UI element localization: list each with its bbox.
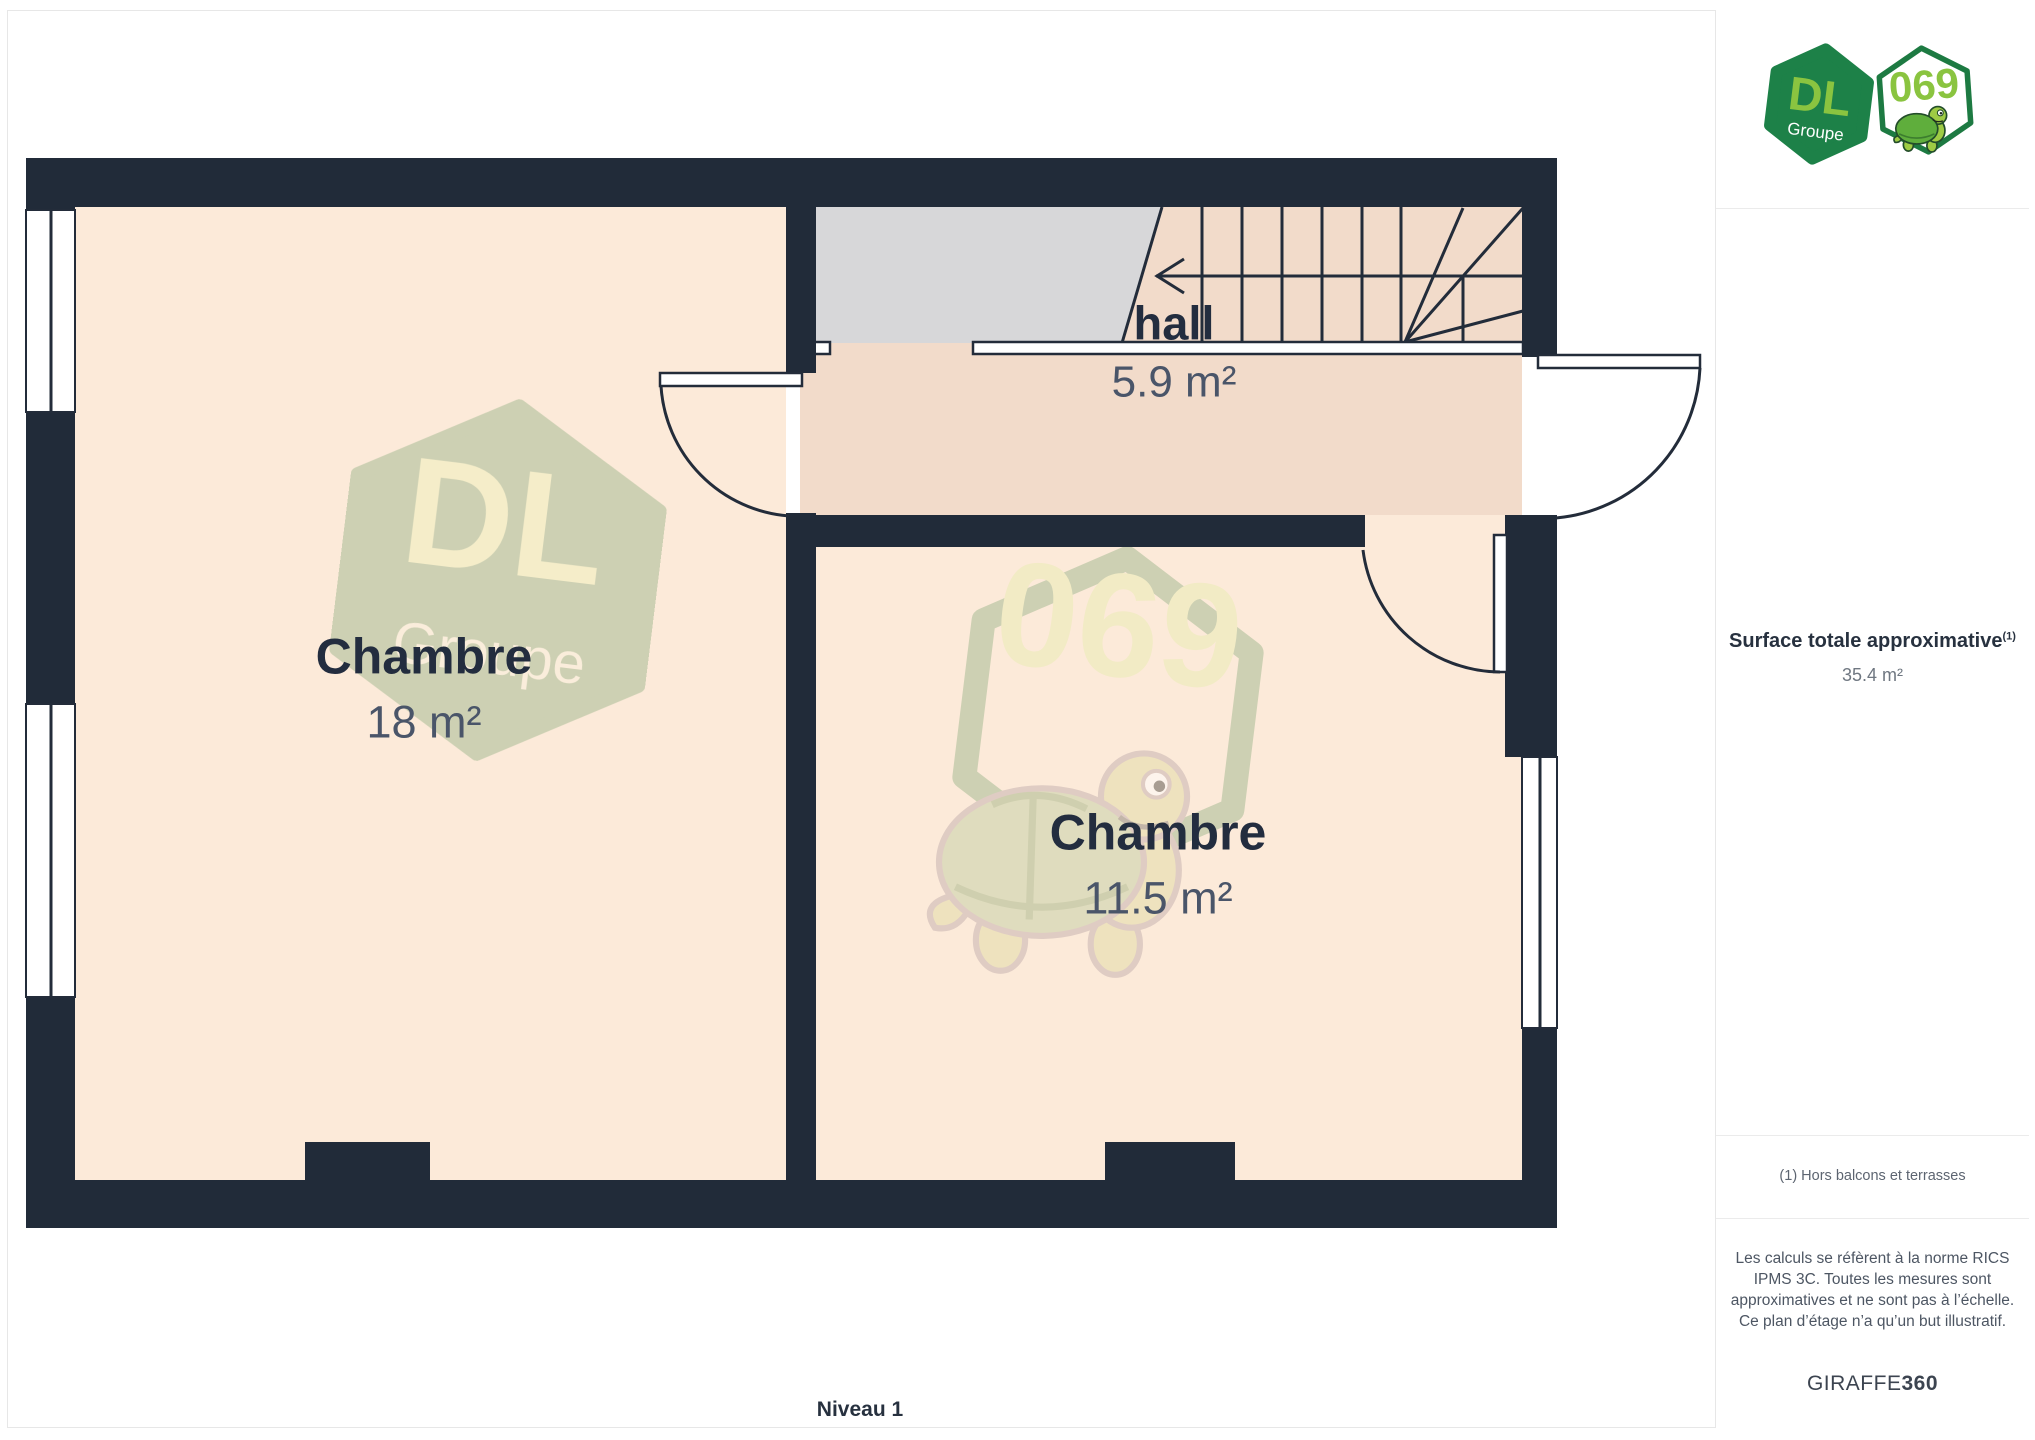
divider — [1716, 1135, 2029, 1136]
disclaimer-text: Les calculs se réfèrent à la norme RICS … — [1727, 1248, 2019, 1332]
dl-hexagon: DL Groupe — [1766, 44, 1871, 164]
logo-dl-text: DL — [1785, 66, 1854, 126]
surface-label-text: Surface totale approximative — [1729, 630, 2002, 652]
divider — [1716, 208, 2029, 209]
chimney-notch — [305, 1142, 430, 1180]
giraffe-brand-name: GIRAFFE — [1807, 1372, 1902, 1395]
chimney-notch — [1105, 1142, 1235, 1180]
dl-groupe-069-logo: DL Groupe 069 — [1757, 42, 1989, 168]
stair-edge-bar — [973, 342, 1523, 354]
logo-069-text: 069 — [1887, 59, 1960, 111]
room-area: 18 m² — [316, 700, 533, 745]
room-name: hall — [1112, 300, 1237, 347]
room-name: Chambre — [316, 632, 533, 682]
giraffe-brand-suffix: 360 — [1901, 1372, 1938, 1395]
watermark-069-text: 069 — [986, 529, 1251, 723]
room-label-chambre-18: Chambre 18 m² — [316, 632, 533, 745]
surface-total-value: 35.4 m² — [1716, 665, 2029, 686]
info-sidebar: DL Groupe 069 — [1715, 10, 2029, 1428]
door-leaf-icon — [1494, 535, 1507, 672]
floorplan-page: DL Groupe 069 — [0, 0, 2035, 1440]
room-label-chambre-11: Chambre 11.5 m² — [1050, 808, 1267, 921]
stair-landing — [816, 207, 1162, 343]
floor-plan-graphic: DL Groupe 069 — [0, 0, 1715, 1440]
divider — [1716, 1218, 2029, 1219]
door-leaf-icon — [660, 373, 802, 386]
room-area: 5.9 m² — [1112, 361, 1237, 405]
room-area: 11.5 m² — [1050, 876, 1267, 921]
footnote: (1) Hors balcons et terrasses — [1716, 1168, 2029, 1184]
logo-box: DL Groupe 069 — [1716, 10, 2029, 208]
room-label-hall: hall 5.9 m² — [1112, 300, 1237, 405]
surface-note-ref: (1) — [2002, 630, 2015, 642]
giraffe360-brand: GIRAFFE360 — [1716, 1372, 2029, 1396]
room-name: Chambre — [1050, 808, 1267, 858]
surface-total-label: Surface totale approximative(1) — [1716, 630, 2029, 653]
door-leaf-icon — [1538, 355, 1700, 368]
level-label: Niveau 1 — [817, 1398, 903, 1422]
watermark-dl-text: DL — [394, 425, 616, 618]
surface-total-block: Surface totale approximative(1) 35.4 m² — [1716, 630, 2029, 686]
door-swing-arc — [1556, 368, 1700, 518]
